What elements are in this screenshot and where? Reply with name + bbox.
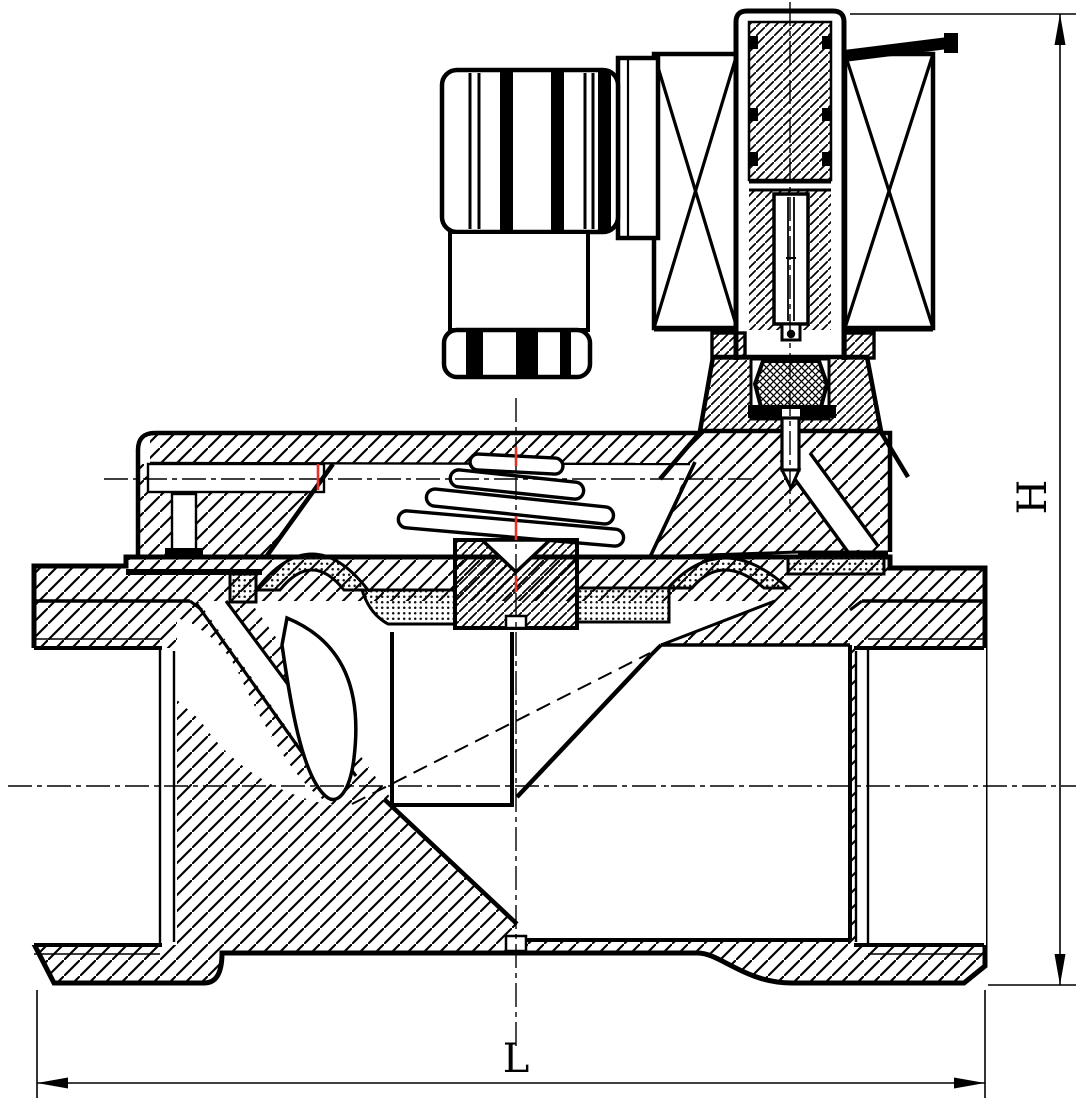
solenoid-valve-drawing: L H (0, 0, 1083, 1107)
connector-cable-gland (444, 330, 590, 377)
arrow-left-icon (37, 1078, 68, 1089)
outlet-port (854, 639, 986, 954)
coil-winding-left (654, 54, 737, 328)
engineering-drawing-page: L H (0, 0, 1083, 1107)
height-dimension-label: H (1010, 480, 1056, 515)
din-connector (442, 58, 658, 377)
connector-neck (618, 58, 658, 238)
plunger (774, 194, 808, 340)
arrow-right-icon (954, 1078, 985, 1089)
dimension-length: L (37, 990, 985, 1098)
coil-winding-right (845, 54, 933, 328)
arrow-down-icon (1055, 954, 1066, 985)
return-spring (398, 454, 625, 547)
length-dimension-label: L (503, 1036, 530, 1082)
inlet-port (30, 639, 177, 954)
arrow-up-icon (1055, 14, 1066, 45)
pilot-channel (148, 464, 324, 492)
connector-lower-body (450, 232, 588, 330)
pilot-seal (755, 361, 827, 407)
